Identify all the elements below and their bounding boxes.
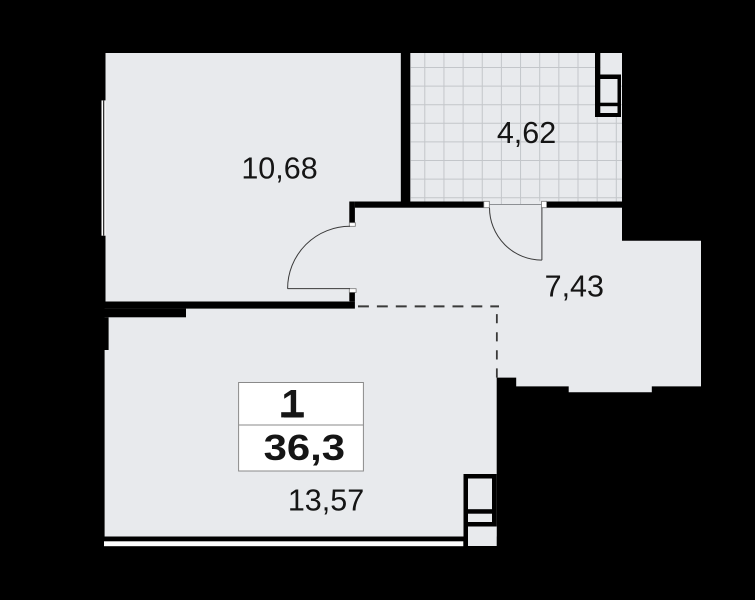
svg-text:7,43: 7,43: [545, 270, 604, 304]
svg-text:1: 1: [282, 382, 304, 426]
svg-text:36,3: 36,3: [264, 427, 346, 468]
svg-text:13,57: 13,57: [288, 484, 364, 518]
svg-text:4,62: 4,62: [497, 116, 556, 150]
svg-text:10,68: 10,68: [241, 152, 317, 186]
